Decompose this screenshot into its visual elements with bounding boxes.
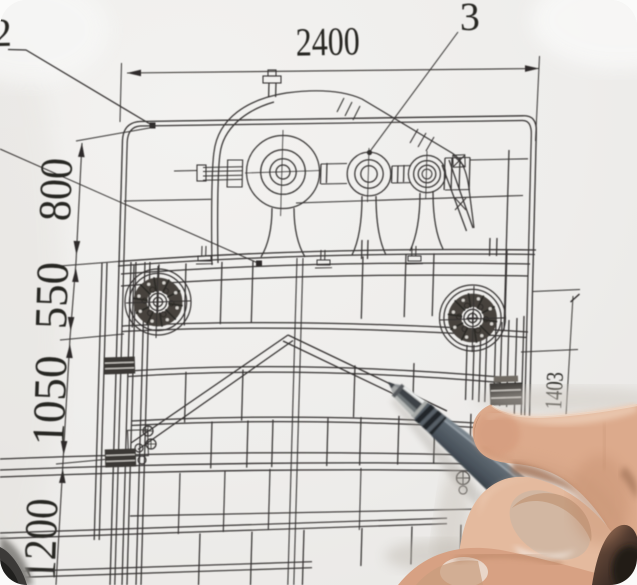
svg-text:550: 550	[25, 261, 78, 330]
svg-text:3: 3	[459, 0, 480, 39]
svg-text:2: 2	[0, 10, 12, 55]
svg-text:2400: 2400	[295, 18, 360, 64]
svg-text:1050: 1050	[22, 355, 76, 447]
svg-text:800: 800	[29, 157, 82, 222]
